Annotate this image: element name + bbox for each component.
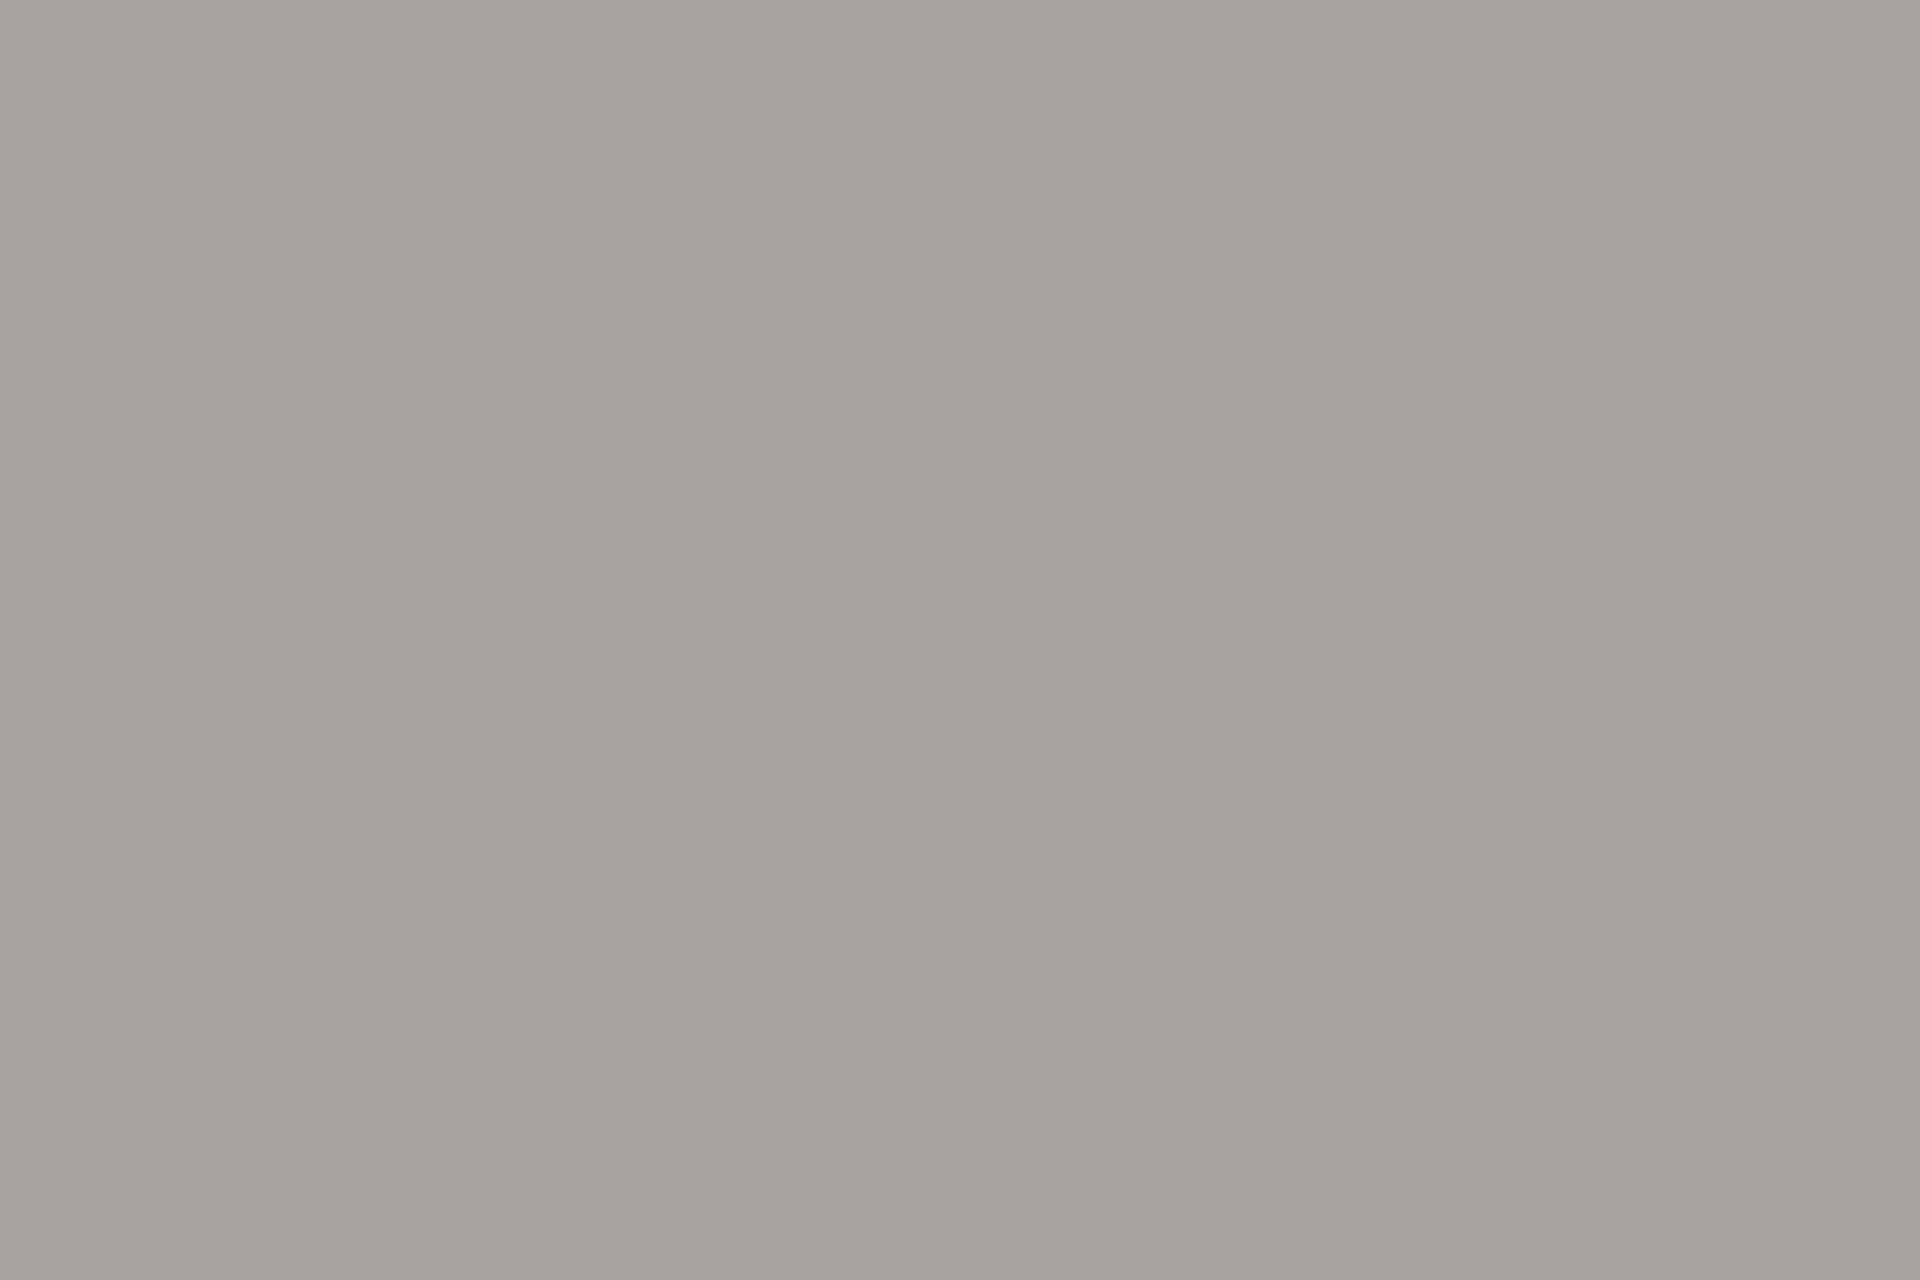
render-canvas (0, 0, 1920, 1280)
aerial-site-render (0, 0, 1920, 1280)
